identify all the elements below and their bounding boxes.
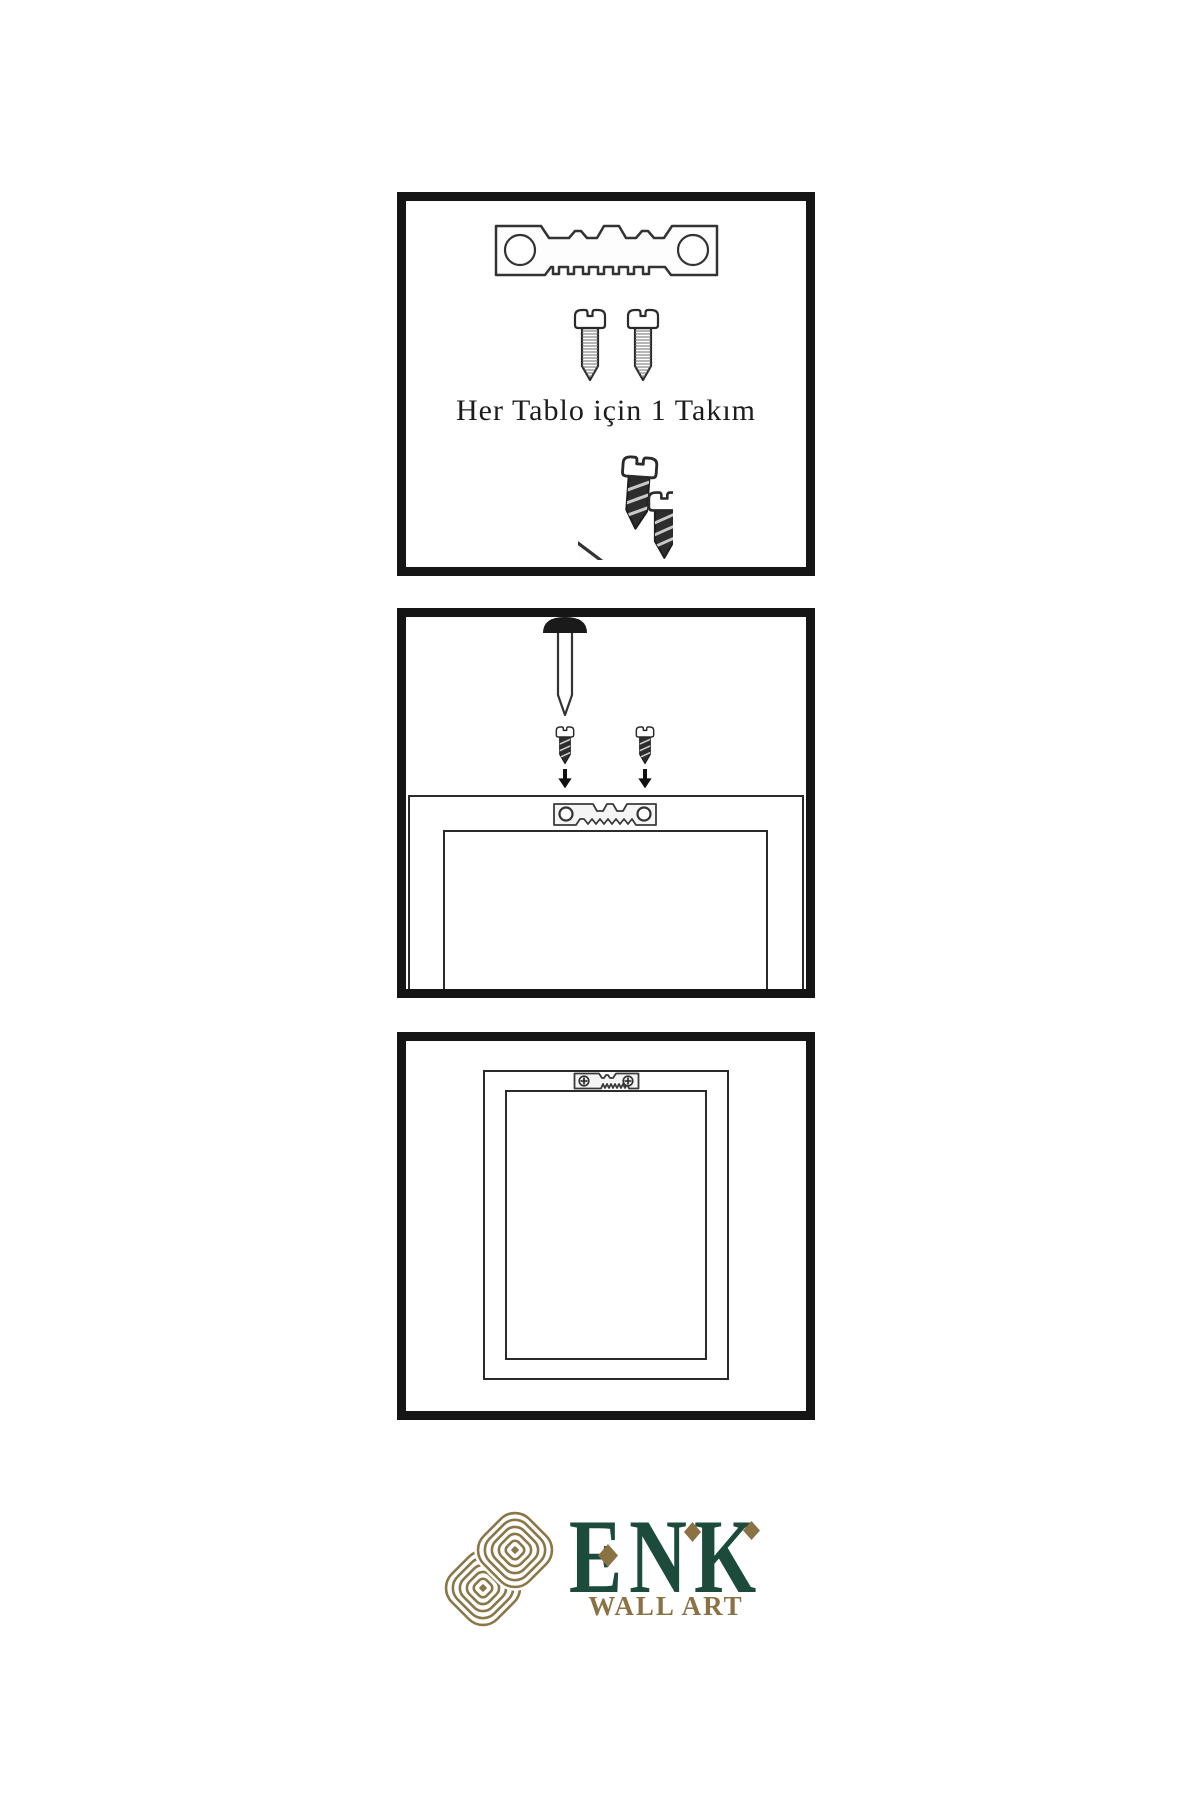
- mounted-hanger-icon: [573, 1072, 640, 1090]
- brand-subtitle: WALL ART: [560, 1591, 772, 1622]
- sawtooth-hanger-icon: [552, 802, 658, 827]
- step-1-panel: Her Tablo için 1 Takım: [397, 192, 815, 576]
- kit-caption: Her Tablo için 1 Takım: [406, 394, 806, 428]
- down-arrow-icon: [637, 769, 653, 789]
- sawtooth-hanger-icon: [493, 223, 720, 278]
- frame-inner-edge: [443, 830, 768, 998]
- down-arrow-icon: [557, 769, 573, 789]
- screw-icon: [635, 725, 655, 765]
- knot-logo-icon: [438, 1505, 560, 1633]
- frame-inner-edge: [505, 1090, 707, 1360]
- screw-icon: [626, 307, 660, 383]
- screw-icon: [555, 725, 575, 765]
- screw-icon: [573, 307, 607, 383]
- step-2-panel: [397, 608, 815, 998]
- step-3-panel: [397, 1032, 815, 1420]
- nail-icon: [542, 617, 588, 717]
- hanger-assembly-icon: [578, 452, 673, 560]
